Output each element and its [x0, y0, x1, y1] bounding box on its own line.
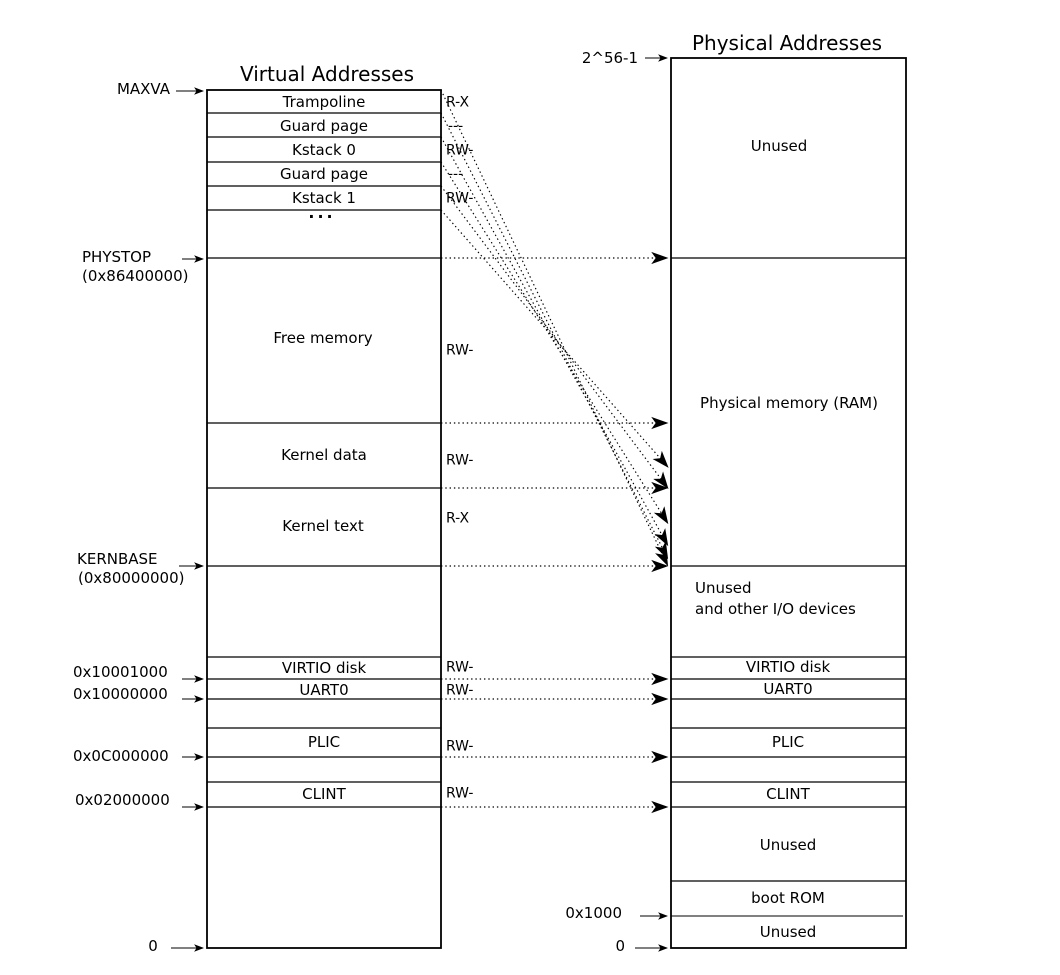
region-kernel-data: Kernel data — [281, 447, 367, 464]
virtual-addresses-title: Virtual Addresses — [240, 63, 414, 85]
region-uart0-physical: UART0 — [763, 681, 812, 698]
address-kernbase: KERNBASE — [77, 551, 158, 568]
address-physical-top: 2^56-1 — [582, 50, 638, 67]
region-trampoline: Trampoline — [283, 94, 366, 111]
address-virtual-zero: 0 — [148, 938, 158, 955]
ellipsis-more-kstacks: ... — [308, 204, 335, 222]
region-plic-physical: PLIC — [772, 734, 804, 751]
region-clint-physical: CLINT — [766, 786, 810, 803]
perm-kstack0: RW- — [446, 143, 474, 158]
physical-addresses-title: Physical Addresses — [692, 32, 882, 54]
perm-kernel-data: RW- — [446, 453, 474, 468]
perm-uart0: RW- — [446, 683, 474, 698]
region-unused-bottom: Unused — [760, 924, 817, 941]
address-physical-zero: 0 — [615, 938, 625, 955]
address-maxva: MAXVA — [117, 81, 170, 98]
region-virtio-disk-physical: VIRTIO disk — [746, 659, 830, 676]
address-virtio-disk: 0x10001000 — [73, 664, 168, 681]
perm-kernel-text: R-X — [446, 511, 469, 526]
region-unused-io-line1: Unused — [695, 578, 856, 599]
perm-guard-page-1: --- — [448, 119, 463, 134]
region-boot-rom: boot ROM — [751, 890, 825, 907]
region-virtio-disk-virtual: VIRTIO disk — [282, 660, 366, 677]
address-phystop-hex: (0x86400000) — [82, 268, 188, 285]
diagram-linework — [0, 0, 1060, 975]
physical-memory-box — [671, 58, 906, 948]
region-uart0-virtual: UART0 — [299, 682, 348, 699]
region-guard-page-2: Guard page — [280, 166, 368, 183]
perm-free-memory: RW- — [446, 343, 474, 358]
region-clint-virtual: CLINT — [302, 786, 346, 803]
region-guard-page-1: Guard page — [280, 118, 368, 135]
address-pointer-arrows — [171, 58, 667, 948]
address-clint: 0x02000000 — [75, 792, 170, 809]
xv6-kernel-address-space-diagram: Virtual Addresses Trampoline Guard page … — [0, 0, 1060, 975]
region-unused-io-devices: Unused and other I/O devices — [695, 578, 856, 620]
region-kstack0: Kstack 0 — [292, 142, 356, 159]
diagonal-mapping-arrows — [441, 90, 667, 564]
perm-trampoline: R-X — [446, 95, 469, 110]
address-plic: 0x0C000000 — [73, 748, 169, 765]
region-unused-middle: Unused — [760, 837, 817, 854]
perm-guard-page-2: --- — [448, 167, 463, 182]
perm-plic: RW- — [446, 739, 474, 754]
address-kernbase-hex: (0x80000000) — [78, 570, 184, 587]
region-physical-ram: Physical memory (RAM) — [700, 395, 878, 412]
region-plic-virtual: PLIC — [308, 734, 340, 751]
region-kernel-text: Kernel text — [282, 518, 364, 535]
perm-kstack1: RW- — [446, 191, 474, 206]
region-unused-io-line2: and other I/O devices — [695, 599, 856, 620]
address-uart0: 0x10000000 — [73, 686, 168, 703]
region-unused-top: Unused — [751, 138, 808, 155]
perm-clint: RW- — [446, 786, 474, 801]
address-boot-rom: 0x1000 — [565, 905, 622, 922]
address-phystop: PHYSTOP — [82, 249, 151, 266]
perm-virtio-disk: RW- — [446, 660, 474, 675]
region-free-memory: Free memory — [273, 330, 372, 347]
